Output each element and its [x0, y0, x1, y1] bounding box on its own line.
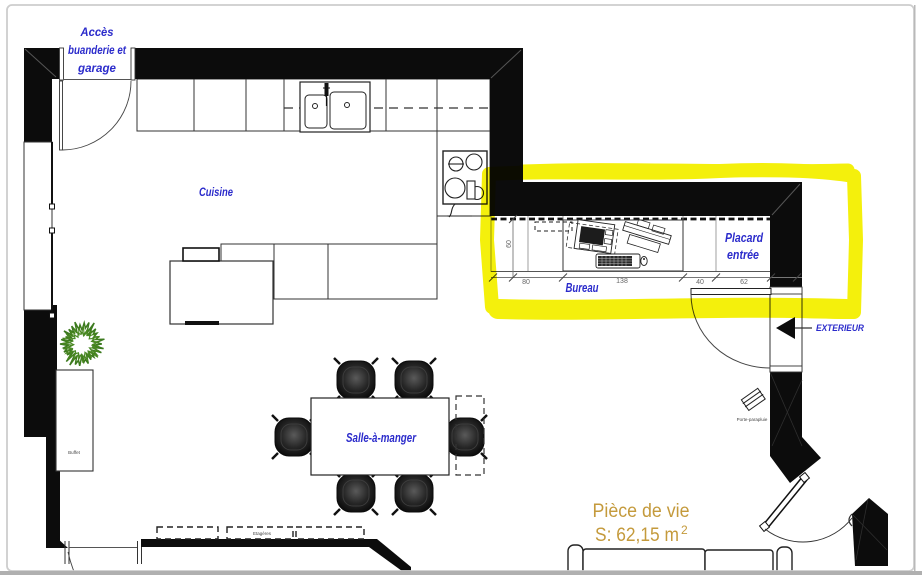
svg-text:buanderie et: buanderie et [68, 45, 127, 57]
svg-text:S: 62,15 m: S: 62,15 m [595, 524, 679, 546]
svg-text:EXTERIEUR: EXTERIEUR [816, 323, 864, 333]
svg-text:Pièce de vie: Pièce de vie [593, 500, 690, 522]
svg-text:60: 60 [506, 240, 513, 248]
svg-text:Salle-à-manger: Salle-à-manger [346, 431, 417, 445]
svg-text:138: 138 [616, 278, 628, 285]
svg-text:40: 40 [696, 279, 704, 286]
svg-text:80: 80 [522, 279, 530, 286]
svg-text:entrée: entrée [727, 248, 759, 262]
svg-text:Accès: Accès [80, 27, 114, 39]
svg-text:Porte-parapluie: Porte-parapluie [737, 417, 768, 422]
svg-text:Bureau: Bureau [566, 281, 599, 295]
svg-text:garage: garage [77, 63, 117, 75]
svg-text:Cuisine: Cuisine [199, 185, 233, 199]
svg-text:Etagères: Etagères [253, 531, 272, 536]
svg-text:2: 2 [681, 523, 688, 537]
svg-text:Placard: Placard [725, 231, 763, 245]
svg-text:62: 62 [740, 279, 748, 286]
svg-text:Buffet: Buffet [68, 450, 80, 455]
